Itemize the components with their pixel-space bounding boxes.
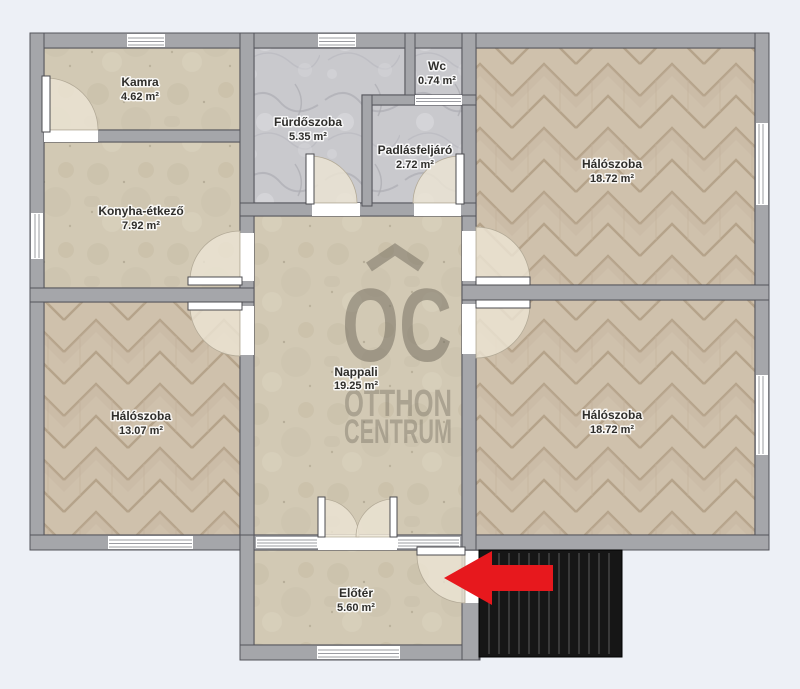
window-haloszoba-bottom-right <box>756 375 768 455</box>
door-leaf-entry <box>417 547 465 555</box>
window-furdoszoba-top <box>318 34 356 47</box>
door-leaf-french-right <box>390 497 397 537</box>
room-padlasfeljaro-area: 2.72 m² <box>396 159 434 171</box>
window-haloszoba-bottom-left <box>108 536 193 549</box>
room-wc-name: Wc <box>428 59 446 73</box>
room-padlasfeljaro-name: Padlásfeljáró <box>378 143 453 157</box>
door-leaf-haloszoba-bottom-left <box>188 302 242 310</box>
room-haloszoba-bottom-right-area: 18.72 m² <box>590 424 634 436</box>
window-nappali-eloter-left <box>256 537 318 548</box>
wall-konyha-haloszoba <box>30 288 254 302</box>
window-kamra-top <box>127 34 165 47</box>
door-opening-kamra <box>44 130 98 142</box>
room-eloter-area: 5.60 m² <box>337 602 375 614</box>
door-leaf-french-left <box>318 497 325 537</box>
room-konyha-etkezo-name: Konyha-étkező <box>98 204 183 218</box>
wall-furdoszoba-wc <box>405 33 415 97</box>
door-opening-haloszoba-top-right <box>462 231 476 281</box>
door-leaf-haloszoba-bottom-right <box>476 300 530 308</box>
room-konyha-etkezo-area: 7.92 m² <box>122 220 160 232</box>
door-opening-furdoszoba <box>312 203 360 216</box>
room-haloszoba-bottom-left-name: Hálószoba <box>111 409 171 423</box>
wall-padlasfeljaro-left <box>362 95 372 206</box>
room-haloszoba-bottom-right-name: Hálószoba <box>582 408 642 422</box>
window-konyha-left <box>31 213 43 259</box>
room-haloszoba-top-right-name: Hálószoba <box>582 157 642 171</box>
door-opening-haloszoba-bottom-right <box>462 304 476 354</box>
watermark-centrum: CENTRUM <box>344 413 452 451</box>
room-nappali-name: Nappali <box>334 365 377 379</box>
room-haloszoba-bottom-left-area: 13.07 m² <box>119 425 163 437</box>
floor-plan-svg: OC OTTHON CENTRUM Kamra 4.62 m² Fürdőszo… <box>0 0 800 689</box>
door-leaf-kamra <box>42 76 50 132</box>
door-leaf-konyha <box>188 277 242 285</box>
window-wc-door-panel <box>415 95 462 105</box>
wall-eloter-left <box>240 535 254 660</box>
door-opening-haloszoba-bottom-left <box>240 306 254 355</box>
door-leaf-furdoszoba <box>306 154 314 204</box>
wall-right-bedrooms-divider <box>462 285 769 300</box>
watermark: OC OTTHON CENTRUM <box>342 250 452 452</box>
room-eloter-name: Előtér <box>339 586 373 600</box>
room-furdoszoba-area: 5.35 m² <box>289 131 327 143</box>
door-opening-padlasfeljaro <box>414 203 461 216</box>
wall-bottom-right <box>462 535 769 550</box>
room-nappali-area: 19.25 m² <box>334 380 378 392</box>
room-kamra-area: 4.62 m² <box>121 91 159 103</box>
window-eloter-bottom <box>317 646 400 659</box>
window-nappali-eloter-right <box>397 537 460 548</box>
window-haloszoba-top-right <box>756 123 768 205</box>
room-wc-area: 0.74 m² <box>418 75 456 87</box>
door-leaf-padlasfeljaro <box>456 154 464 204</box>
door-leaf-haloszoba-top-right <box>476 277 530 285</box>
room-haloszoba-top-right-area: 18.72 m² <box>590 173 634 185</box>
room-kamra-name: Kamra <box>121 75 159 89</box>
floor-plan-canvas: OC OTTHON CENTRUM Kamra 4.62 m² Fürdőszo… <box>0 0 800 689</box>
room-furdoszoba-name: Fürdőszoba <box>274 115 342 129</box>
door-opening-konyha <box>240 233 254 281</box>
